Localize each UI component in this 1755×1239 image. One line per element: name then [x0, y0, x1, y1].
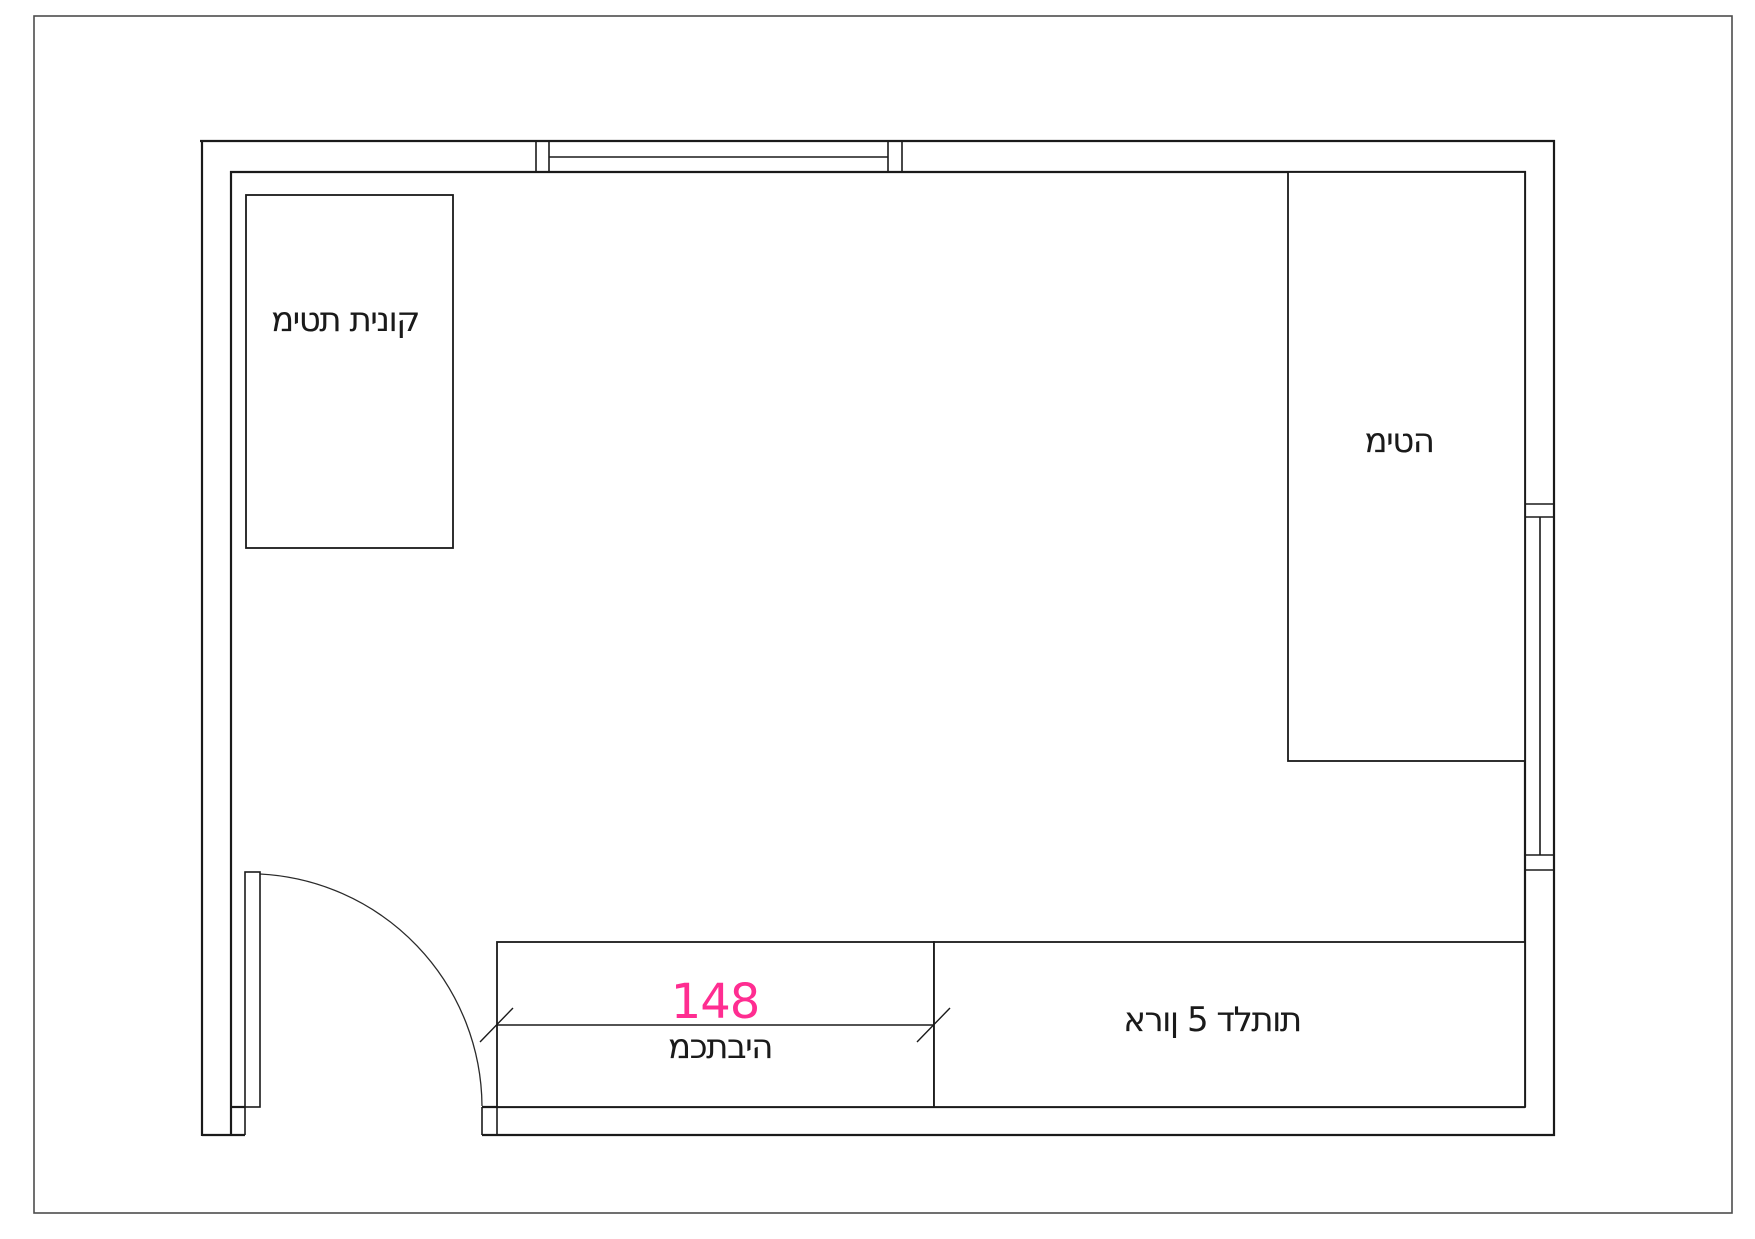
crib-outline — [246, 195, 453, 548]
dimension-value[interactable]: 148 — [671, 974, 760, 1030]
floor-plan-canvas: מיטת תינוק מיטה מכתביה ארון 5 דלתות 148 — [0, 0, 1755, 1239]
furniture-crib[interactable]: מיטת תינוק — [246, 195, 453, 548]
closet-label: ארון 5 דלתות — [1123, 1000, 1301, 1040]
top-wall-window[interactable] — [536, 141, 902, 172]
floor-plan-drawing: מיטת תינוק מיטה מכתביה ארון 5 דלתות 148 — [0, 0, 1755, 1239]
furniture-bed[interactable]: מיטה — [1288, 172, 1525, 761]
furniture-closet[interactable]: ארון 5 דלתות — [934, 942, 1525, 1107]
bed-label: מיטה — [1365, 421, 1434, 461]
crib-label: מיטת תינוק — [271, 300, 419, 340]
desk-label: מכתביה — [668, 1027, 772, 1067]
right-wall-window[interactable] — [1525, 504, 1554, 870]
door[interactable] — [245, 872, 482, 1107]
door-swing-arc — [260, 874, 482, 1106]
bed-outline — [1288, 172, 1525, 761]
door-leaf — [245, 872, 260, 1107]
